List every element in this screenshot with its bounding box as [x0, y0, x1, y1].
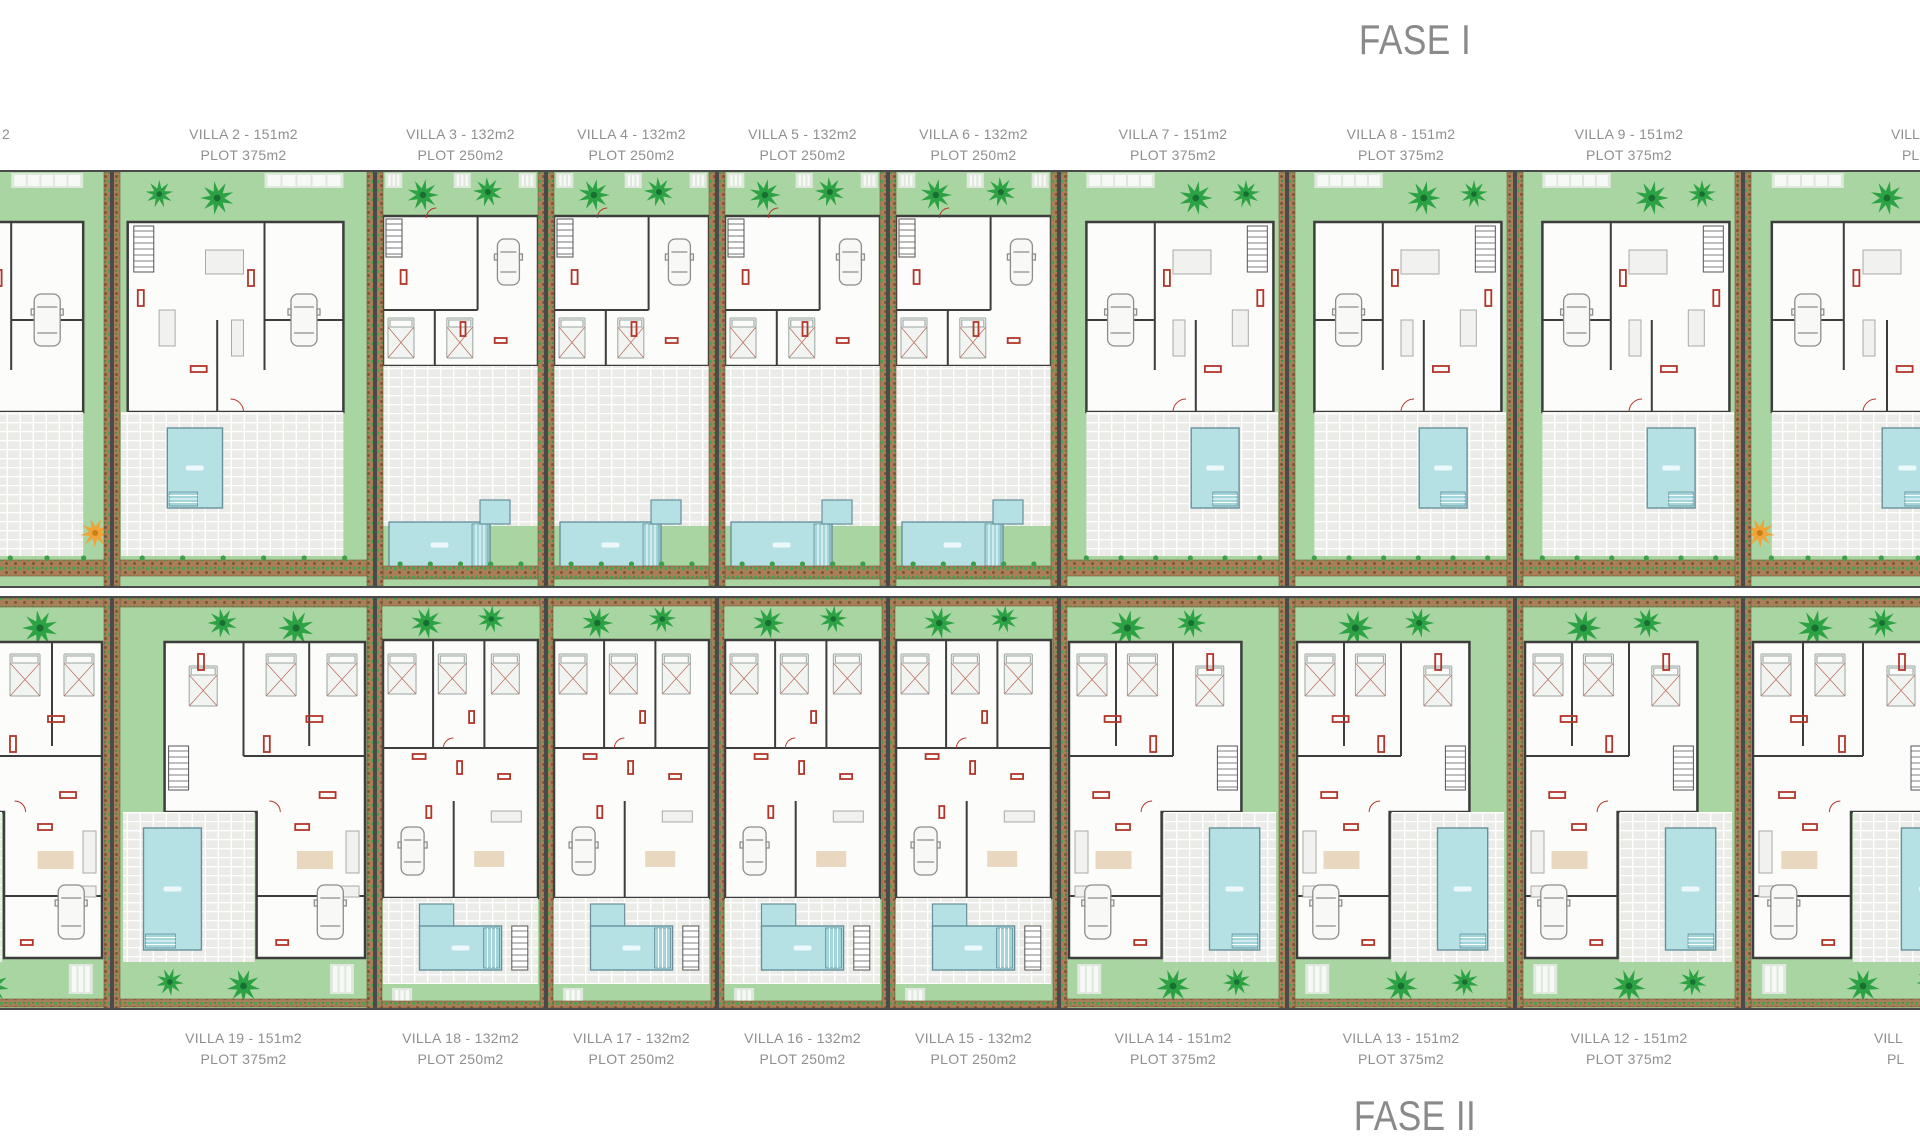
villa-3-label: VILLA 3 - 132m2PLOT 250m2	[375, 124, 546, 166]
villa-9-plan	[1515, 170, 1743, 588]
plot-size: PLOT 250m2	[717, 145, 888, 166]
villa-16-plan	[717, 596, 888, 1010]
villa-15-label: VILLA 15 - 132m2PLOT 250m2	[888, 1028, 1059, 1070]
phase-1-title: FASE I	[1359, 16, 1471, 64]
villa-name: VILLA 8 - 151m2	[1287, 124, 1515, 145]
villa-14-plan	[1059, 596, 1287, 1010]
villa-15-plan	[888, 596, 1059, 1010]
villa-edge-left-bottom-plan	[0, 596, 112, 1010]
truncated-label-line: VILLA	[1891, 124, 1920, 145]
villa-edge-right-top-plan	[1743, 170, 1920, 588]
plot-size: PLOT 375m2	[1059, 1049, 1287, 1070]
truncated-label-line: PL	[1874, 1049, 1920, 1070]
villa-edge-right-bottom-plan	[1743, 596, 1920, 1010]
villa-edge-left-top-plan	[0, 170, 112, 588]
villa-6-label: VILLA 6 - 132m2PLOT 250m2	[888, 124, 1059, 166]
truncated-label-bottom-right: VILL PL	[1874, 1028, 1920, 1070]
villa-name: VILLA 14 - 151m2	[1059, 1028, 1287, 1049]
villa-18-plan	[375, 596, 546, 1010]
villa-name: VILLA 19 - 151m2	[112, 1028, 375, 1049]
villa-18-label: VILLA 18 - 132m2PLOT 250m2	[375, 1028, 546, 1070]
villa-5-label: VILLA 5 - 132m2PLOT 250m2	[717, 124, 888, 166]
plot-size: PLOT 375m2	[1059, 145, 1287, 166]
villa-name: VILLA 18 - 132m2	[375, 1028, 546, 1049]
plot-size: PLOT 375m2	[1515, 145, 1743, 166]
villa-17-plan	[546, 596, 717, 1010]
villa-name: VILLA 12 - 151m2	[1515, 1028, 1743, 1049]
villa-name: VILLA 4 - 132m2	[546, 124, 717, 145]
villa-16-label: VILLA 16 - 132m2PLOT 250m2	[717, 1028, 888, 1070]
phase-2-title: FASE II	[1354, 1092, 1477, 1140]
villa-name: VILLA 9 - 151m2	[1515, 124, 1743, 145]
plot-size: PLOT 375m2	[112, 1049, 375, 1070]
villa-3-plan	[375, 170, 546, 588]
villa-2-plan	[112, 170, 375, 588]
villa-9-label: VILLA 9 - 151m2PLOT 375m2	[1515, 124, 1743, 166]
villa-5-plan	[717, 170, 888, 588]
plot-size: PLOT 375m2	[1287, 1049, 1515, 1070]
plot-size: PLOT 375m2	[1287, 145, 1515, 166]
plot-size: PLOT 250m2	[546, 1049, 717, 1070]
plot-size: PLOT 375m2	[1515, 1049, 1743, 1070]
villa-7-label: VILLA 7 - 151m2PLOT 375m2	[1059, 124, 1287, 166]
truncated-label-line: PL	[1891, 145, 1920, 166]
villa-name: VILLA 16 - 132m2	[717, 1028, 888, 1049]
plot-size: PLOT 375m2	[112, 145, 375, 166]
truncated-label-line: VILL	[1874, 1028, 1920, 1049]
villa-name: VILLA 7 - 151m2	[1059, 124, 1287, 145]
villa-12-label: VILLA 12 - 151m2PLOT 375m2	[1515, 1028, 1743, 1070]
villa-19-label: VILLA 19 - 151m2PLOT 375m2	[112, 1028, 375, 1070]
villa-name: VILLA 6 - 132m2	[888, 124, 1059, 145]
villa-name: VILLA 2 - 151m2	[112, 124, 375, 145]
villa-19-plan	[112, 596, 375, 1010]
villa-name: VILLA 17 - 132m2	[546, 1028, 717, 1049]
truncated-label-top-left: 2	[2, 124, 10, 145]
villa-8-label: VILLA 8 - 151m2PLOT 375m2	[1287, 124, 1515, 166]
villa-6-plan	[888, 170, 1059, 588]
plot-size: PLOT 250m2	[546, 145, 717, 166]
truncated-label-top-right: VILLA PL	[1891, 124, 1920, 166]
villa-4-plan	[546, 170, 717, 588]
villa-17-label: VILLA 17 - 132m2PLOT 250m2	[546, 1028, 717, 1070]
villa-12-plan	[1515, 596, 1743, 1010]
plot-size: PLOT 250m2	[888, 145, 1059, 166]
villa-name: VILLA 3 - 132m2	[375, 124, 546, 145]
plot-size: PLOT 250m2	[717, 1049, 888, 1070]
plot-size: PLOT 250m2	[888, 1049, 1059, 1070]
villa-7-plan	[1059, 170, 1287, 588]
villa-2-label: VILLA 2 - 151m2PLOT 375m2	[112, 124, 375, 166]
villa-name: VILLA 15 - 132m2	[888, 1028, 1059, 1049]
villa-13-label: VILLA 13 - 151m2PLOT 375m2	[1287, 1028, 1515, 1070]
villa-8-plan	[1287, 170, 1515, 588]
plot-size: PLOT 250m2	[375, 145, 546, 166]
villa-13-plan	[1287, 596, 1515, 1010]
site-plan: FASE I VILLA 2 - 151m2PLOT 375m2VILLA 3 …	[0, 0, 1920, 1140]
villa-name: VILLA 13 - 151m2	[1287, 1028, 1515, 1049]
villa-14-label: VILLA 14 - 151m2PLOT 375m2	[1059, 1028, 1287, 1070]
plot-size: PLOT 250m2	[375, 1049, 546, 1070]
villa-4-label: VILLA 4 - 132m2PLOT 250m2	[546, 124, 717, 166]
villa-name: VILLA 5 - 132m2	[717, 124, 888, 145]
